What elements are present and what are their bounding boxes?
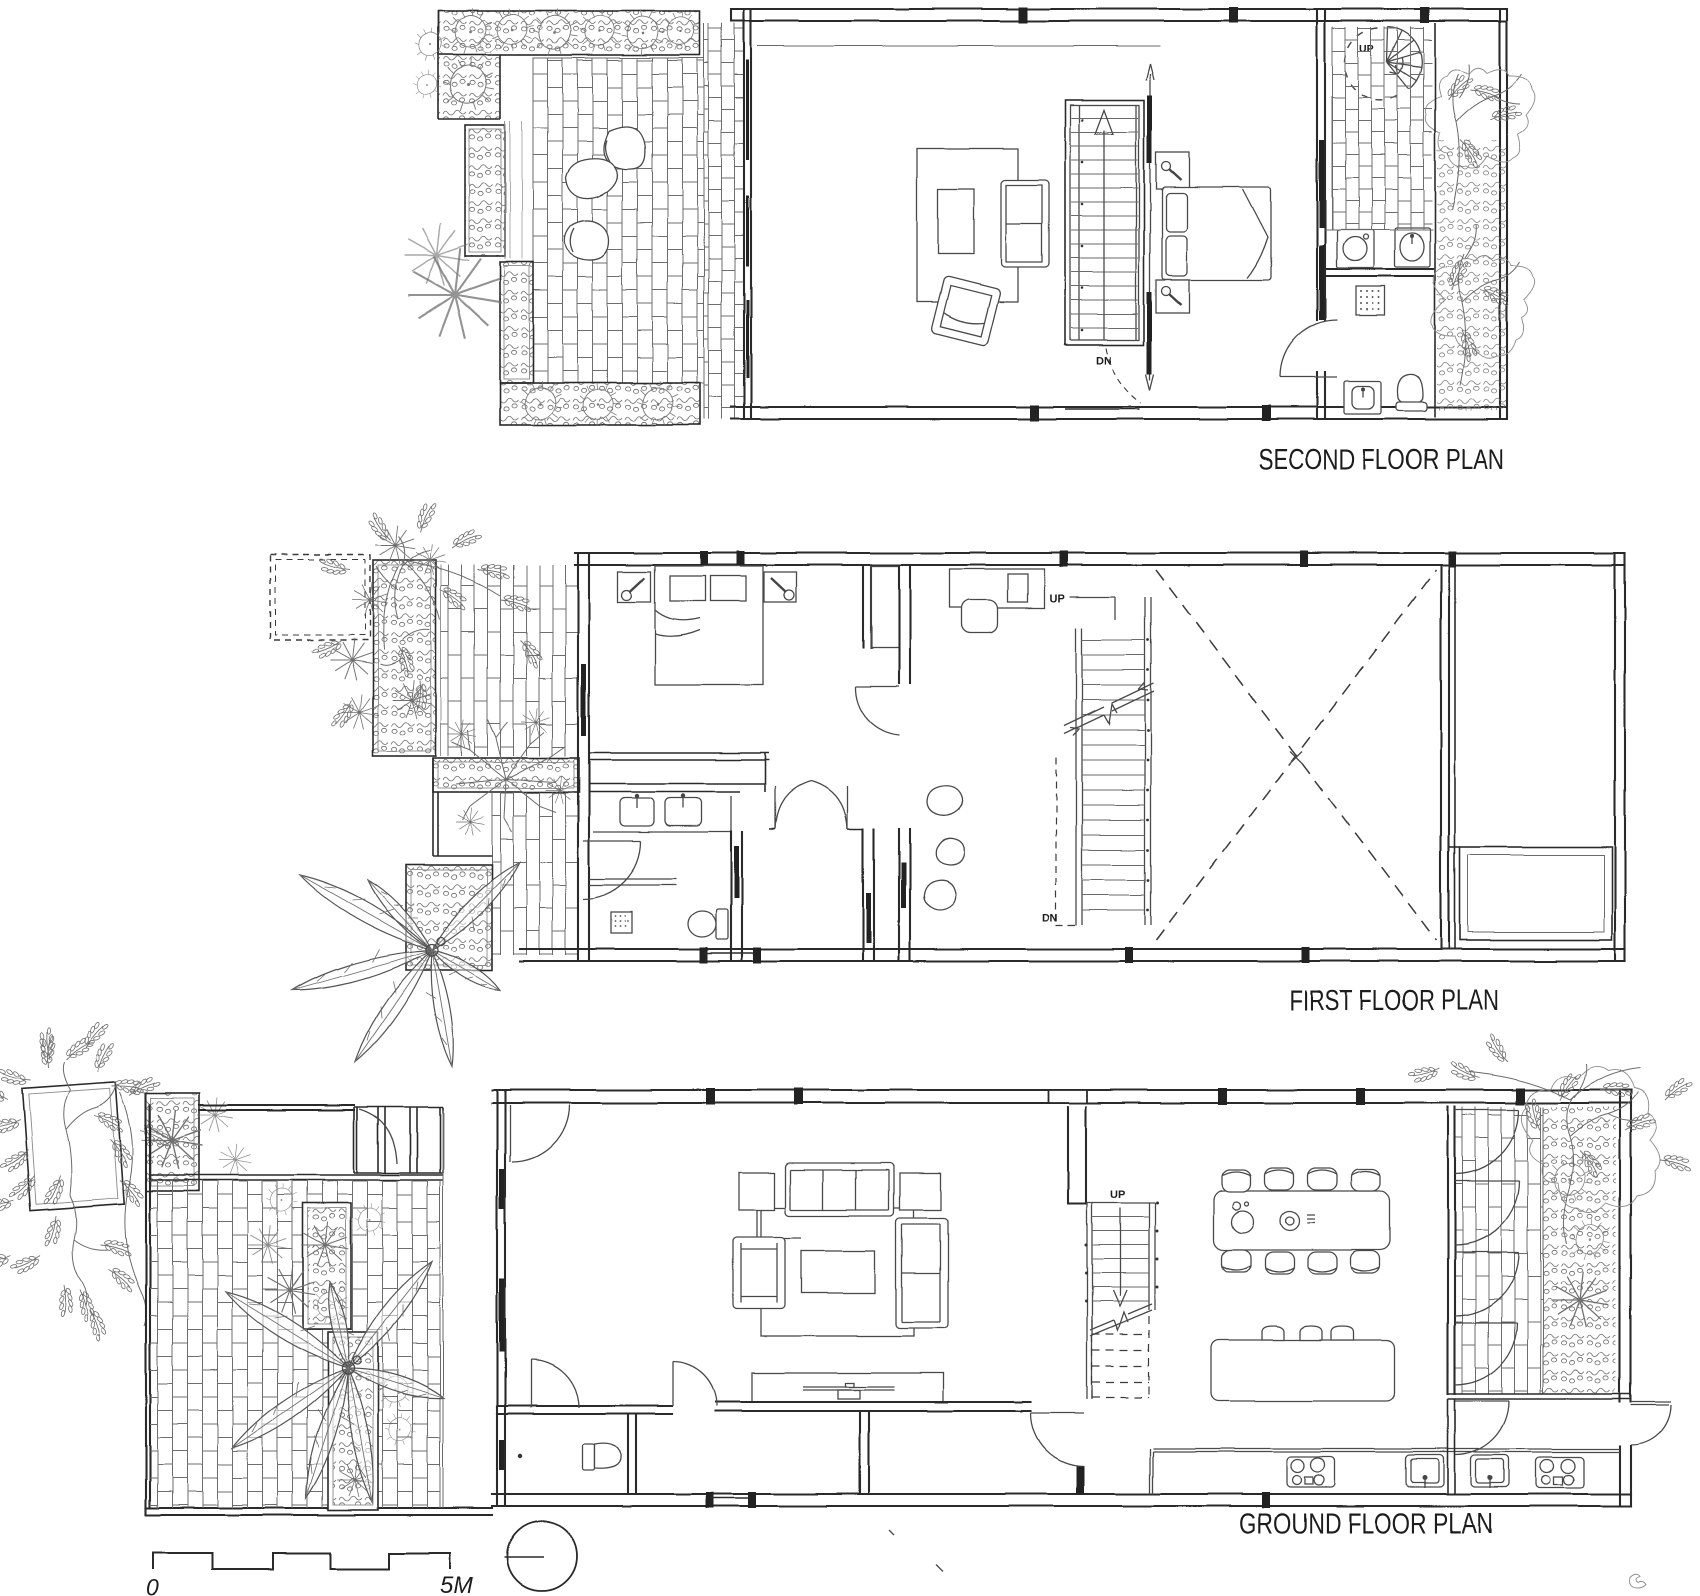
svg-text:UP: UP — [1050, 593, 1065, 605]
svg-text:SECOND FLOOR PLAN: SECOND FLOOR PLAN — [1259, 444, 1504, 476]
svg-text:0: 0 — [146, 1574, 159, 1596]
svg-text:FIRST FLOOR PLAN: FIRST FLOOR PLAN — [1289, 985, 1499, 1017]
svg-text:GROUND FLOOR PLAN: GROUND FLOOR PLAN — [1239, 1508, 1493, 1540]
svg-text:UP: UP — [1110, 1189, 1125, 1201]
svg-text:5M: 5M — [440, 1572, 473, 1596]
svg-text:DN: DN — [1042, 912, 1058, 924]
